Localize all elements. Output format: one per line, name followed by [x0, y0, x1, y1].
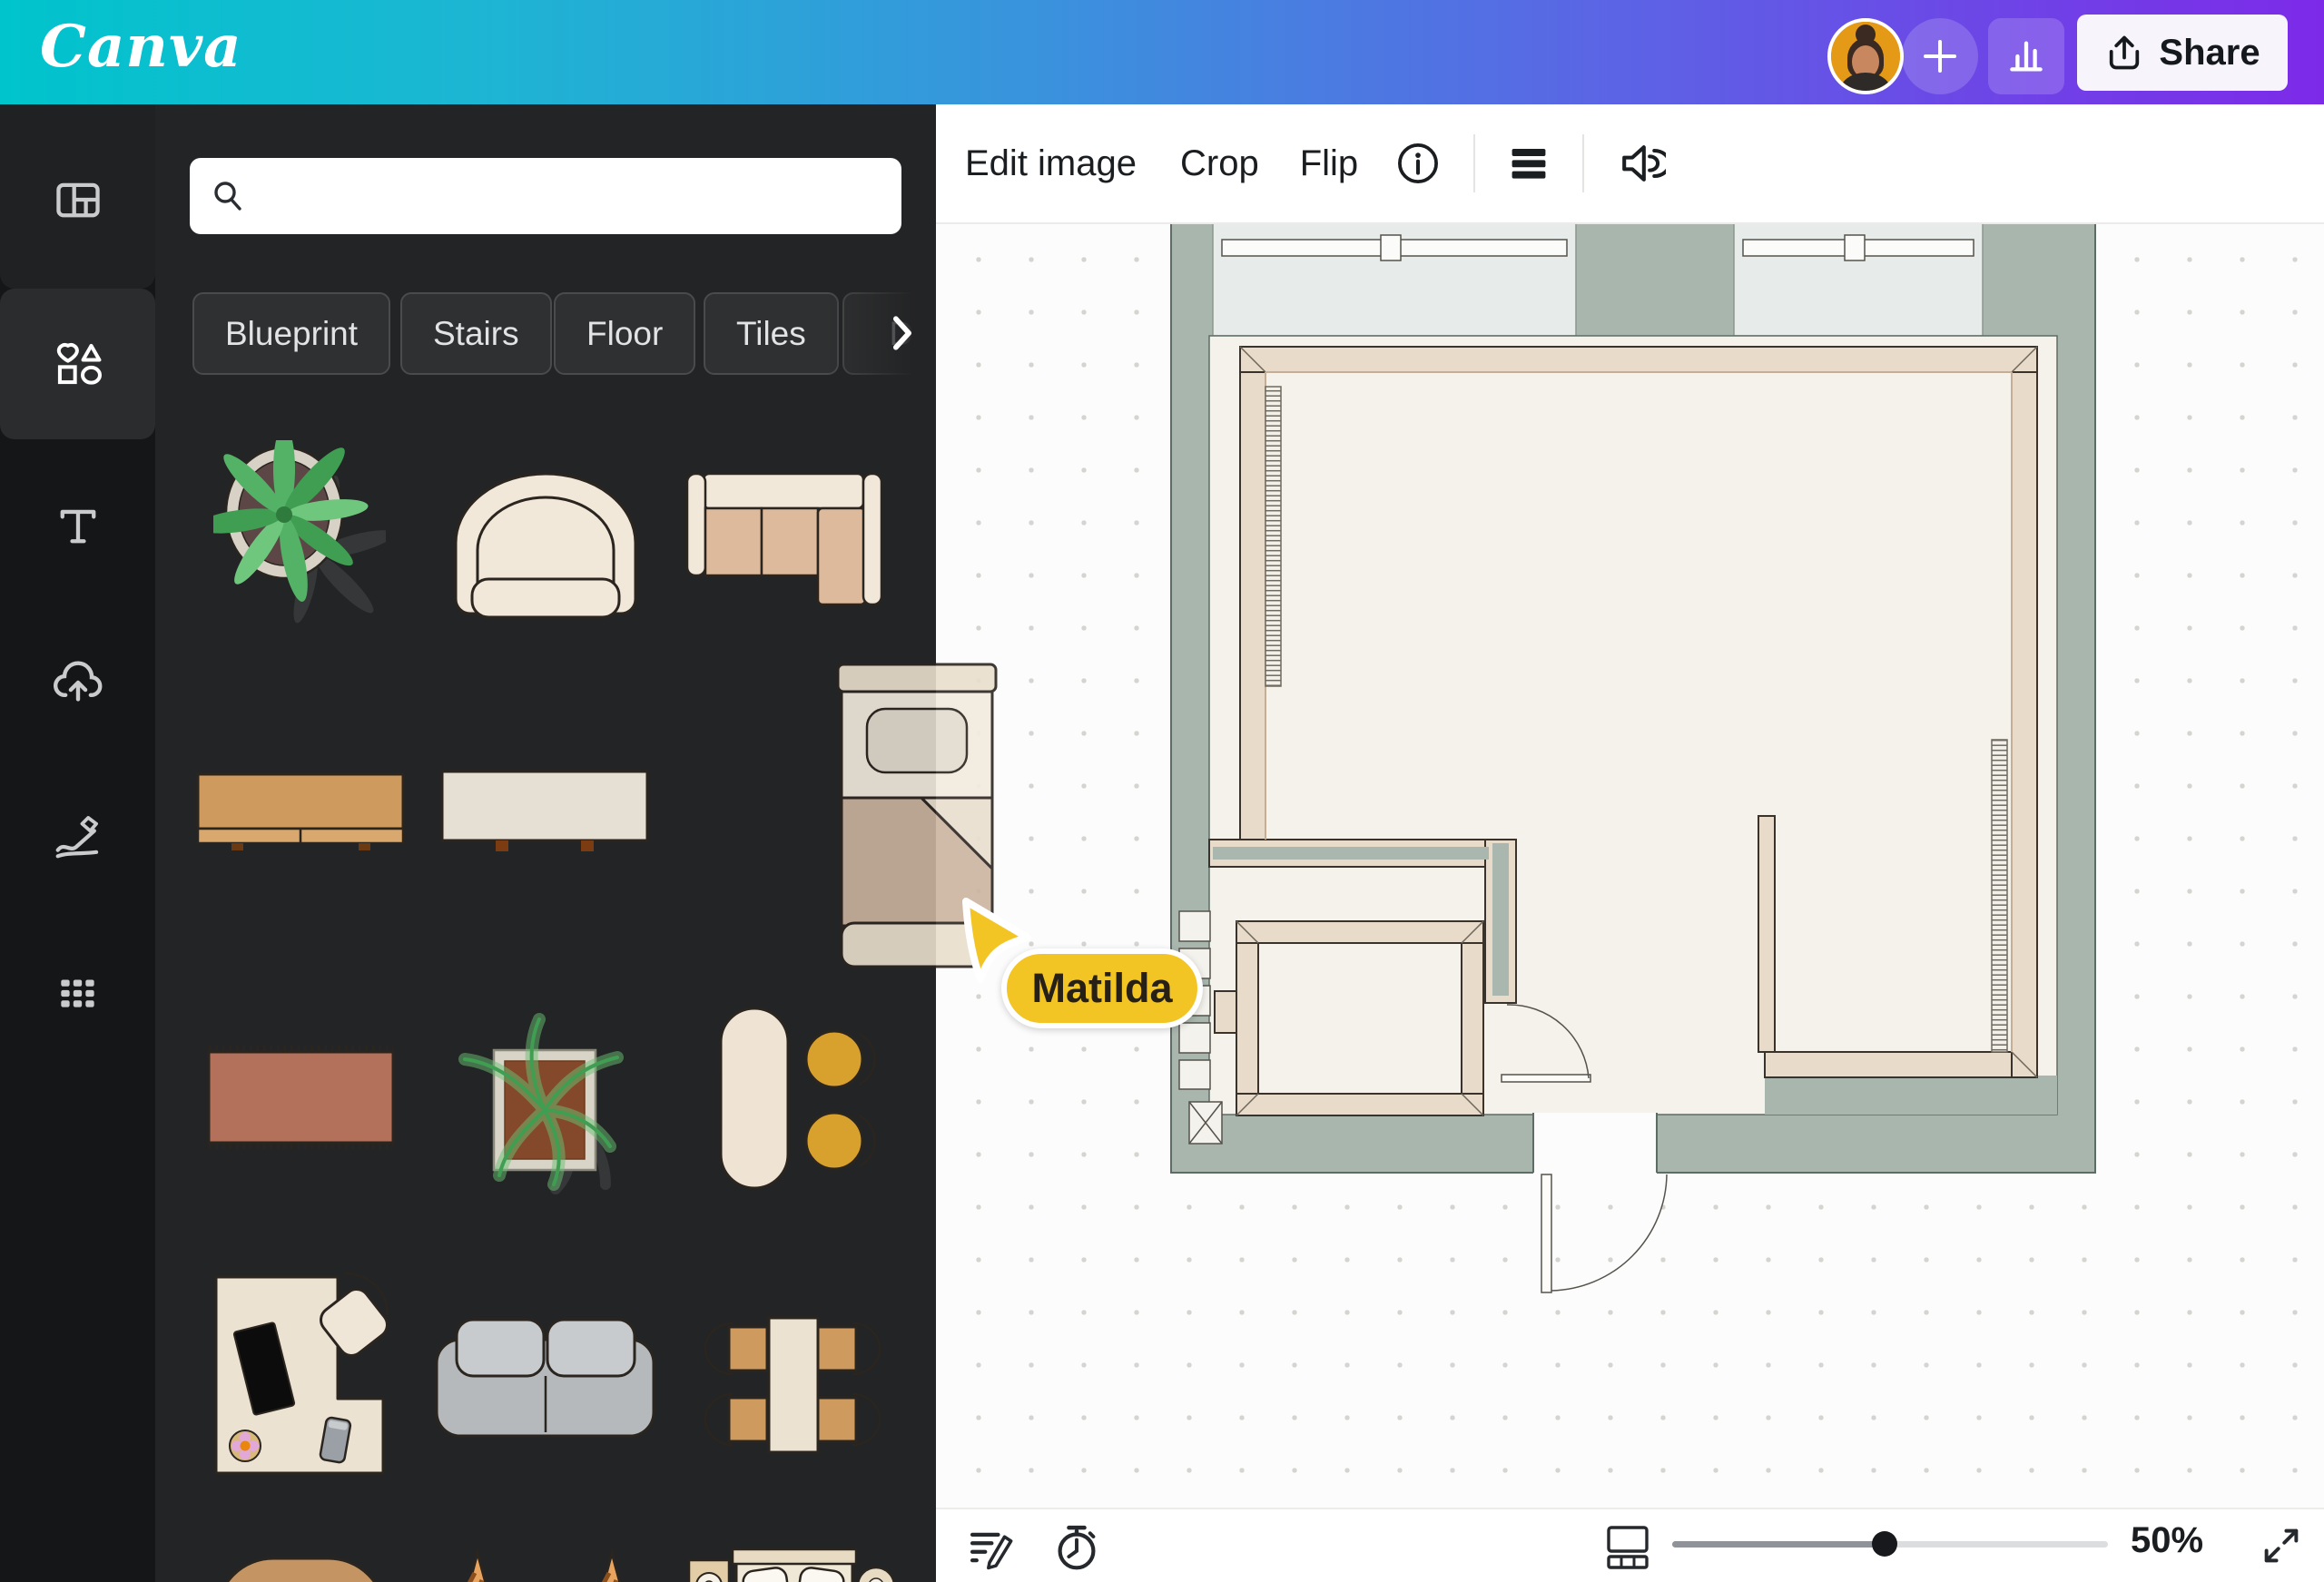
element-sideboard[interactable] [195, 771, 406, 855]
element-armchair[interactable] [445, 463, 646, 620]
position-menu-icon [1504, 139, 1553, 188]
share-button[interactable]: Share [2077, 15, 2288, 91]
toolbar-divider [1582, 134, 1584, 192]
image-toolbar: Edit image Crop Flip [936, 104, 2324, 224]
bar-chart-icon [2004, 34, 2048, 78]
grid-view-button[interactable] [1605, 1524, 1650, 1574]
chips-scroll-button[interactable] [887, 315, 918, 356]
element-sectional-sofa[interactable] [684, 470, 885, 609]
floor-plan-image[interactable] [1169, 209, 2104, 1298]
share-upload-icon [2104, 33, 2144, 73]
element-desk-setup[interactable] [209, 1266, 390, 1479]
elements-panel: Blueprint Stairs Floor Tiles D [155, 104, 936, 1582]
element-double-bed-set[interactable] [687, 1548, 896, 1582]
canva-editor: Canva Share [0, 0, 2324, 1582]
zoom-slider-fill [1672, 1541, 1884, 1548]
position-button[interactable] [1504, 139, 1553, 188]
sidebar-item-text[interactable] [0, 462, 155, 589]
plan-shaft [1189, 1102, 1222, 1144]
apps-grid-icon [54, 968, 103, 1017]
insights-button[interactable] [1988, 18, 2064, 94]
share-label: Share [2159, 33, 2260, 74]
crop-button[interactable]: Crop [1180, 143, 1259, 184]
chip-stairs[interactable]: Stairs [400, 292, 552, 375]
cursor-arrow-icon [944, 894, 1035, 985]
draw-icon [52, 810, 104, 862]
info-icon [1394, 140, 1442, 187]
element-wood-wedge-chair[interactable] [440, 1549, 516, 1582]
topbar: Canva Share [0, 0, 2324, 104]
flip-button[interactable]: Flip [1300, 143, 1358, 184]
notes-icon [966, 1524, 1013, 1571]
zoom-level[interactable]: 50% [2131, 1520, 2203, 1561]
sidebar-item-design[interactable] [0, 136, 155, 263]
chip-tiles[interactable]: Tiles [704, 292, 839, 375]
chevron-right-icon [887, 315, 918, 351]
search-box[interactable] [190, 158, 901, 234]
plan-radiator [1992, 740, 2007, 1052]
canva-logo[interactable]: Canva [40, 13, 242, 81]
element-wood-wedge-chair[interactable] [575, 1549, 650, 1582]
audio-icon [1615, 138, 1666, 189]
element-table-with-stools[interactable] [714, 1003, 878, 1194]
sidebar-item-draw[interactable] [0, 772, 155, 899]
chip-blueprint[interactable]: Blueprint [192, 292, 390, 375]
uploads-cloud-icon [51, 655, 105, 710]
element-oval-table[interactable] [213, 1553, 389, 1582]
edit-image-button[interactable]: Edit image [965, 143, 1137, 184]
elements-icon [52, 338, 104, 390]
grid-view-icon [1605, 1524, 1650, 1569]
chips-scroll-fade [827, 290, 936, 377]
sidebar-rail [0, 104, 155, 1582]
text-icon [53, 500, 103, 551]
sidebar-item-elements[interactable] [0, 300, 155, 427]
element-table[interactable] [439, 769, 650, 854]
element-loveseat[interactable] [433, 1314, 657, 1440]
design-icon [53, 174, 103, 225]
notes-button[interactable] [966, 1524, 1013, 1576]
element-dining-table-chairs[interactable] [687, 1314, 896, 1456]
toolbar-divider [1473, 134, 1475, 192]
timer-button[interactable] [1052, 1522, 1101, 1576]
info-button[interactable] [1394, 140, 1442, 187]
avatar-photo [1831, 22, 1900, 91]
chip-floor[interactable]: Floor [554, 292, 695, 375]
search-input[interactable] [259, 169, 901, 223]
canvas-area: Edit image Crop Flip [936, 104, 2324, 1582]
zoom-slider-knob[interactable] [1872, 1531, 1897, 1557]
element-rug[interactable] [202, 1045, 400, 1150]
sidebar-item-uploads[interactable] [0, 619, 155, 746]
timer-icon [1052, 1522, 1101, 1571]
add-design-button[interactable] [1902, 18, 1978, 94]
expand-icon [2260, 1524, 2303, 1567]
element-palm-plant[interactable] [438, 1003, 653, 1194]
plus-icon [1920, 36, 1960, 76]
element-potted-plant[interactable] [213, 440, 386, 627]
audio-button[interactable] [1615, 138, 1666, 189]
sidebar-item-apps[interactable] [0, 929, 155, 1056]
zoom-slider[interactable] [1672, 1541, 2108, 1548]
plan-radiator [1265, 387, 1281, 686]
avatar[interactable] [1827, 18, 1904, 94]
search-icon [210, 178, 246, 214]
fullscreen-button[interactable] [2260, 1524, 2303, 1572]
bottom-bar: 50% [936, 1508, 2324, 1582]
